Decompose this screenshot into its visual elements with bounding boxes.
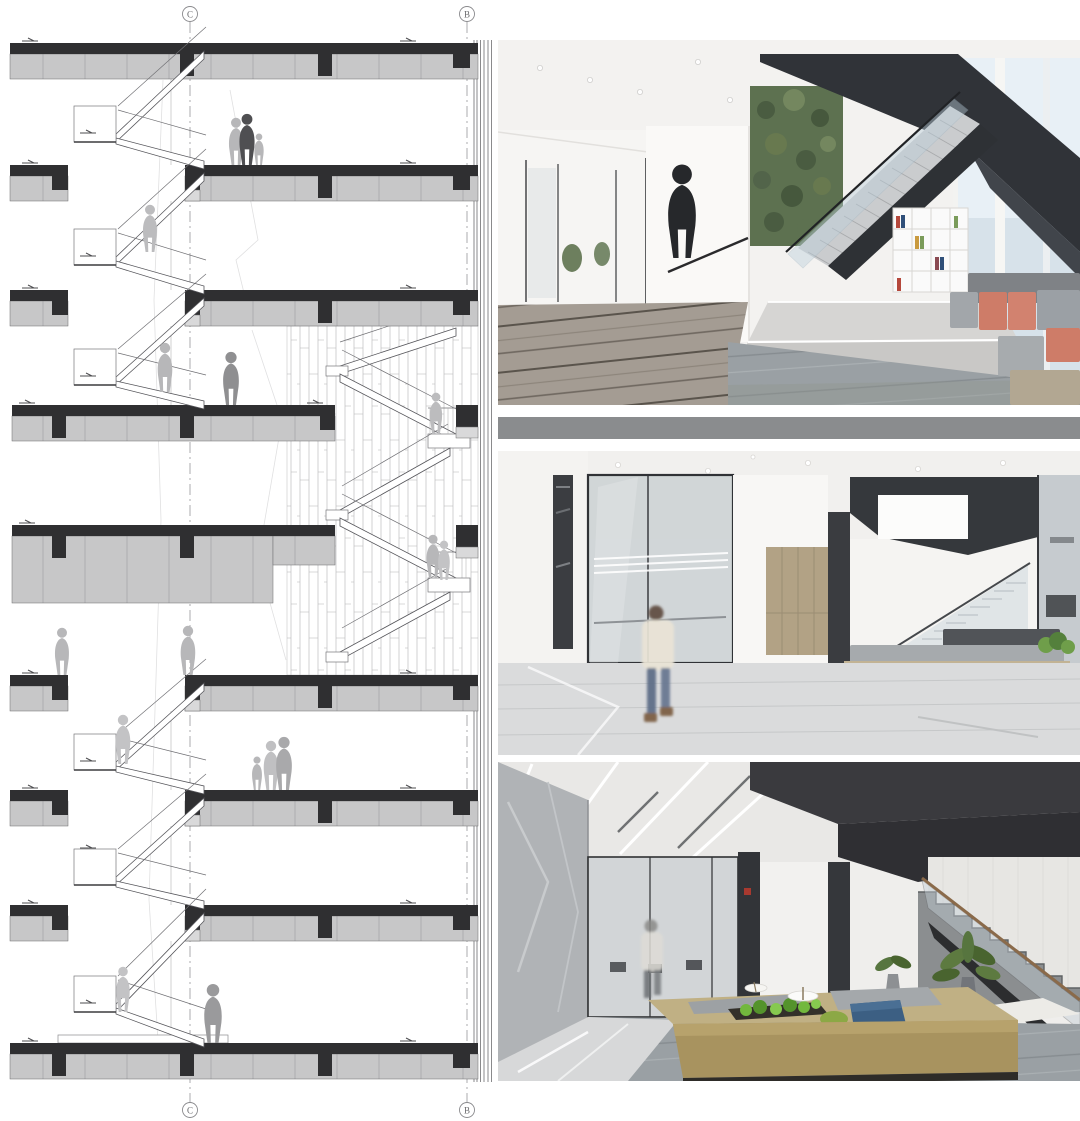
photo-lobby-bench — [498, 417, 1080, 755]
floor-slab — [10, 670, 478, 711]
cove-light — [498, 439, 1080, 451]
floor-slab — [10, 285, 478, 326]
grid-bubble-bottom-b: B — [464, 1106, 470, 1116]
plant — [594, 242, 610, 266]
cube-bookshelf — [893, 208, 968, 292]
left-wall — [498, 451, 588, 663]
floor-slab — [10, 1035, 478, 1079]
page-canvas: C C B B — [0, 0, 1080, 1121]
tan-cabinets — [766, 547, 828, 655]
section-drawing: C C B B — [0, 0, 492, 1121]
floor-slab — [10, 785, 478, 826]
corridor — [498, 130, 648, 306]
curtain-wall-hatch — [287, 326, 478, 675]
access-panel — [744, 888, 751, 895]
light-panel — [878, 495, 968, 539]
dark-pier — [828, 512, 850, 667]
photo-planter-bench-stair — [498, 762, 1080, 1081]
marble-floor — [498, 663, 1080, 755]
ottoman — [1010, 370, 1080, 405]
floor-slab — [10, 160, 478, 201]
grid-bubble-top-c: C — [187, 10, 193, 20]
plant — [562, 244, 582, 272]
floor-slab — [10, 38, 478, 79]
grid-bubble-bottom-c: C — [187, 1106, 193, 1116]
back-wall — [733, 475, 828, 667]
marble-wall — [498, 762, 588, 1062]
sketch-line — [252, 330, 286, 660]
floor-slab — [10, 900, 478, 941]
grid-bubble-top-b: B — [464, 10, 470, 20]
photo-office-stair-lounge — [498, 40, 1080, 405]
